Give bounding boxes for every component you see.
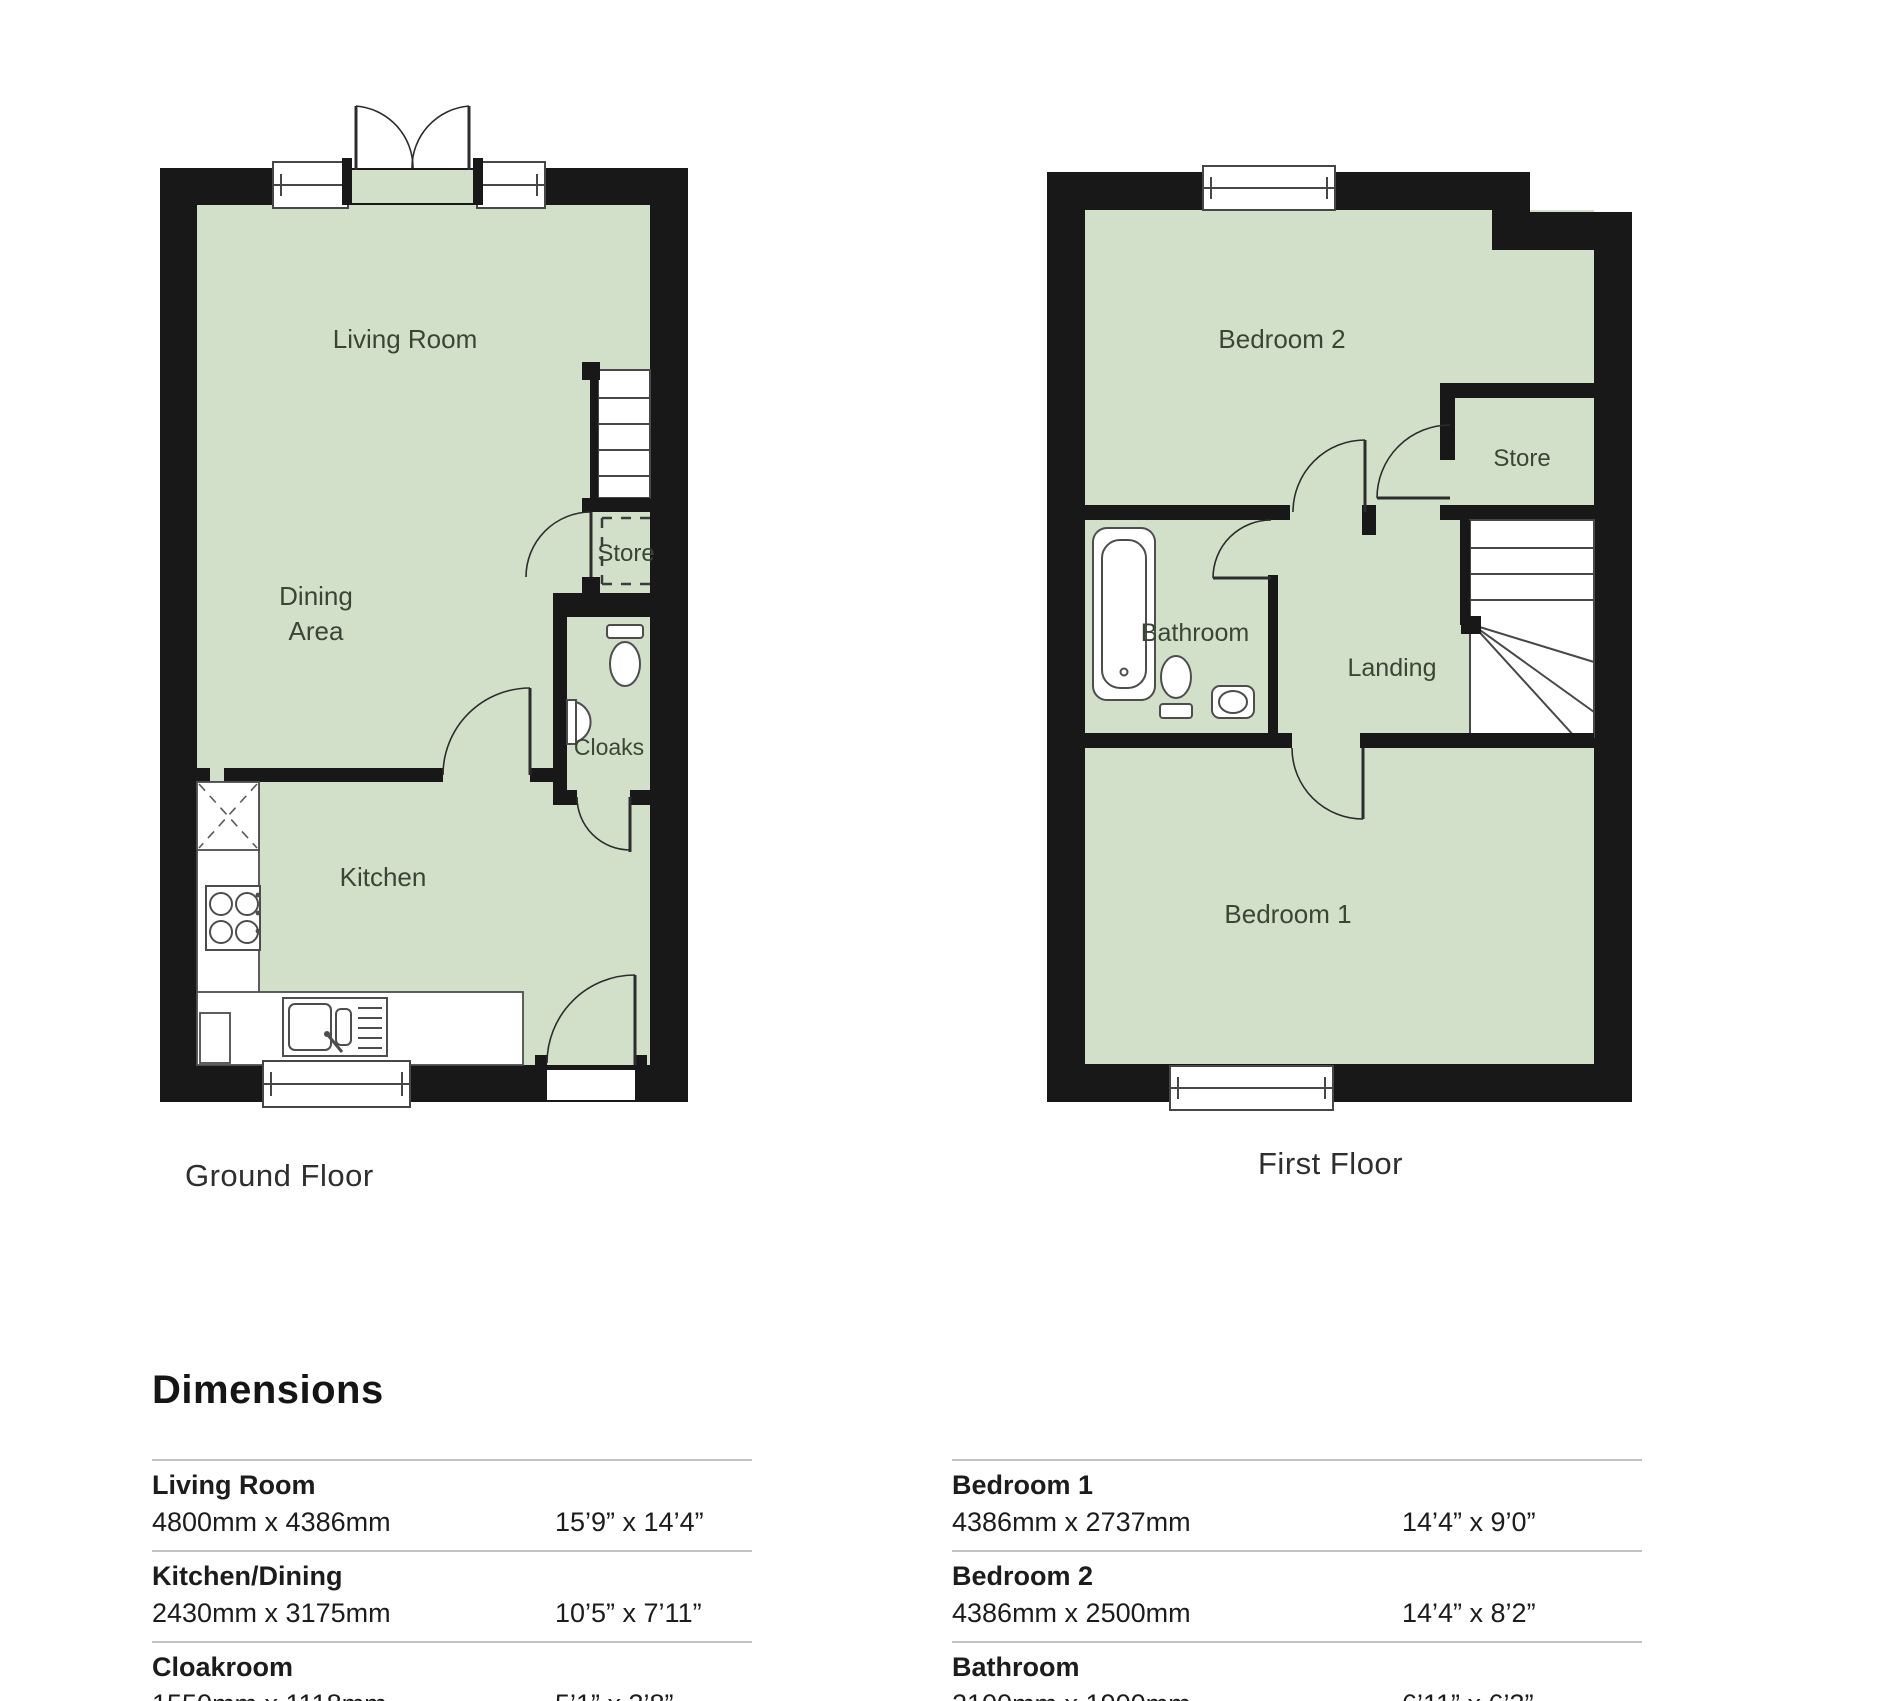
dimension-name: Bathroom bbox=[952, 1652, 1642, 1683]
staircase-ff bbox=[1460, 520, 1594, 737]
room-label-living-room: Living Room bbox=[333, 324, 478, 354]
room-label-kitchen: Kitchen bbox=[340, 862, 427, 892]
dimension-metric: 2430mm x 3175mm bbox=[152, 1598, 555, 1629]
dimension-metric: 1550mm x 1118mm bbox=[152, 1689, 555, 1701]
kitchen-window bbox=[263, 1061, 410, 1107]
first-floor-caption: First Floor bbox=[1258, 1146, 1403, 1182]
dimension-imperial: 15’9” x 14’4” bbox=[555, 1507, 704, 1538]
room-label-store-gf: Store bbox=[597, 540, 654, 567]
room-label-dining-1: Dining bbox=[279, 581, 353, 611]
floorplan-page: Living Room Dining Area Store Cloaks Kit… bbox=[0, 0, 1900, 1701]
dimension-imperial: 14’4” x 8’2” bbox=[1402, 1598, 1536, 1629]
room-label-store-ff: Store bbox=[1493, 445, 1550, 472]
room-label-bathroom: Bathroom bbox=[1141, 619, 1249, 647]
dimension-name: Kitchen/Dining bbox=[152, 1561, 752, 1592]
room-label-bedroom2: Bedroom 2 bbox=[1218, 324, 1345, 354]
kitchen-sink bbox=[283, 998, 387, 1056]
ground-floor-plan: Living Room Dining Area Store Cloaks Kit… bbox=[120, 50, 740, 1170]
dimension-name: Bedroom 1 bbox=[952, 1470, 1642, 1501]
dimension-imperial: 6’11” x 6’3” bbox=[1402, 1689, 1534, 1701]
dimension-imperial: 14’4” x 9’0” bbox=[1402, 1507, 1536, 1538]
dimensions-column-right: Bedroom 1 4386mm x 2737mm 14’4” x 9’0” B… bbox=[952, 1459, 1642, 1701]
french-doors bbox=[342, 106, 483, 205]
dimension-imperial: 5’1” x 3’8” bbox=[555, 1689, 674, 1701]
dimension-row-kitchen-dining: Kitchen/Dining 2430mm x 3175mm 10’5” x 7… bbox=[152, 1550, 752, 1641]
dimensions-section: Dimensions Living Room 4800mm x 4386mm 1… bbox=[152, 1368, 1652, 1701]
dimension-row-living-room: Living Room 4800mm x 4386mm 15’9” x 14’4… bbox=[152, 1459, 752, 1550]
bedroom1-window bbox=[1170, 1066, 1333, 1110]
dimension-metric: 4386mm x 2737mm bbox=[952, 1507, 1402, 1538]
room-label-landing: Landing bbox=[1348, 654, 1437, 682]
bedroom2-window bbox=[1203, 166, 1335, 210]
room-label-dining-2: Area bbox=[289, 616, 344, 646]
room-label-bedroom1: Bedroom 1 bbox=[1224, 899, 1351, 929]
dimensions-heading: Dimensions bbox=[152, 1368, 1652, 1413]
dimension-name: Living Room bbox=[152, 1470, 752, 1501]
bathroom-walls bbox=[1268, 575, 1278, 748]
dimension-metric: 4386mm x 2500mm bbox=[952, 1598, 1402, 1629]
dimension-row-cloakroom: Cloakroom 1550mm x 1118mm 5’1” x 3’8” bbox=[152, 1641, 752, 1701]
cloaks-toilet bbox=[607, 625, 643, 686]
dimensions-grid: Living Room 4800mm x 4386mm 15’9” x 14’4… bbox=[152, 1459, 1652, 1701]
dimension-imperial: 10’5” x 7’11” bbox=[555, 1598, 702, 1629]
living-room-window-right bbox=[477, 162, 545, 208]
bathtub bbox=[1093, 528, 1155, 700]
room-label-cloaks: Cloaks bbox=[574, 734, 644, 760]
bathroom-toilet bbox=[1160, 656, 1192, 718]
dimensions-column-left: Living Room 4800mm x 4386mm 15’9” x 14’4… bbox=[152, 1459, 752, 1701]
bathroom-sink bbox=[1212, 686, 1254, 718]
kitchen-hob bbox=[206, 886, 260, 950]
dimension-row-bedroom1: Bedroom 1 4386mm x 2737mm 14’4” x 9’0” bbox=[952, 1459, 1642, 1550]
living-room-window-left bbox=[273, 162, 348, 208]
first-floor-plan: Bedroom 2 Store Bathroom Landing Bedroom… bbox=[1020, 120, 1660, 1120]
kitchen-appliance-space bbox=[197, 782, 259, 850]
dimension-name: Bedroom 2 bbox=[952, 1561, 1642, 1592]
dimension-row-bedroom2: Bedroom 2 4386mm x 2500mm 14’4” x 8’2” bbox=[952, 1550, 1642, 1641]
dimension-name: Cloakroom bbox=[152, 1652, 752, 1683]
dimension-row-bathroom: Bathroom 2100mm x 1900mm 6’11” x 6’3” bbox=[952, 1641, 1642, 1701]
ground-floor-caption: Ground Floor bbox=[185, 1158, 374, 1194]
dimension-metric: 2100mm x 1900mm bbox=[952, 1689, 1402, 1701]
dimension-metric: 4800mm x 4386mm bbox=[152, 1507, 555, 1538]
staircase bbox=[582, 362, 650, 498]
